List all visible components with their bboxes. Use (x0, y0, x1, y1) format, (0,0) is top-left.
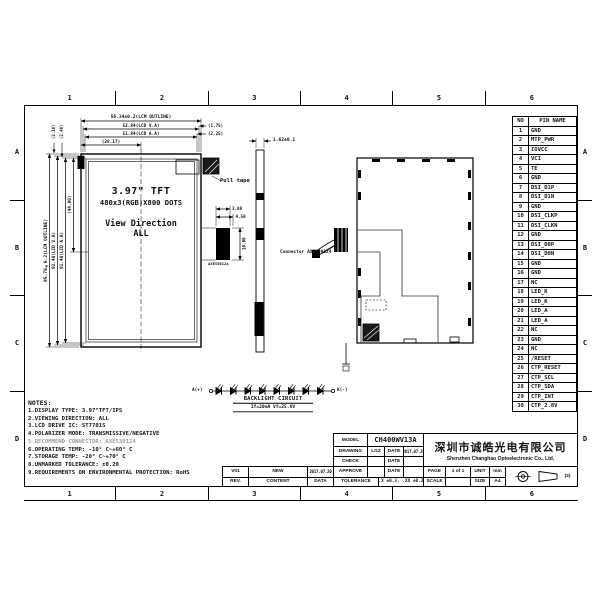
backlight-cathode-label: K(-) (337, 388, 348, 393)
approve-date-cell (403, 466, 423, 477)
content-label-cell: CONTENT (248, 477, 307, 488)
pin-row: 27 CTP_SCL (513, 373, 577, 383)
dim-lcm-outline-width: 56.34±0.2(LCM OUTLINE) (81, 115, 201, 120)
pin-row: 26 CTP_RESET (513, 364, 577, 374)
date-label-cell: DATE (384, 446, 403, 456)
note-item: 1.DISPLAY TYPE: 3.97"TFT/IPS (28, 408, 220, 416)
note-item: 8.UNMARKED TOLERANCE: ±0.20 (28, 462, 220, 470)
pin-number: 26 (513, 364, 529, 374)
pin-row: 25 /RESET (513, 354, 577, 364)
dim-right-margin-1: (1.75) (208, 123, 223, 128)
pin-name: GND (529, 126, 577, 136)
front-view (78, 149, 222, 352)
pin-name: GND (529, 202, 577, 212)
note-item: 3.LCD DRIVE IC: ST7701S (28, 423, 220, 431)
side-view (249, 138, 271, 352)
pin-row: 17 NC (513, 278, 577, 288)
check-by-cell (367, 456, 384, 466)
pin-name: LED_A (529, 307, 577, 317)
dim-vertical-center: (44.90) (67, 158, 74, 252)
note-item: 5.RECOMMEND CONNECTOR: AXE530124 (28, 439, 220, 447)
pin-row: 15 GND (513, 259, 577, 269)
title-block: V01 NEW 2017.07.20 REV. CONTENT DATA MOD… (222, 433, 578, 487)
pin-table-header: NO PIN NAME (513, 117, 577, 127)
tolerance-label-cell: TOLERANCE (333, 477, 378, 488)
pin-row: 2 MTP_PWR (513, 136, 577, 146)
pin-table: NO PIN NAME 1 GND 2 MTP_PWR 3 IOVCC 4 VC… (512, 116, 577, 412)
pin-name: CTP_INT (529, 392, 577, 402)
backlight-anode-label: A(+) (192, 388, 203, 393)
dim-lcd-va-width: 52.84(LCD V.A) (83, 124, 199, 129)
backlight-spec: If=20mA Vf=25.6V (233, 405, 313, 410)
pin-name: /RESET (529, 354, 577, 364)
dim-lcd-aa-width: 51.84(LCD A.A) (85, 132, 197, 137)
pin-number: 10 (513, 212, 529, 222)
rev-label-cell: REV. (222, 477, 248, 488)
connector-label: Connector AXE530124 (280, 250, 331, 255)
dim-lcd-va-height: 92.48(LCD V.A) (51, 156, 58, 345)
pin-number: 17 (513, 278, 529, 288)
pin-row: 24 NC (513, 345, 577, 355)
pin-number: 15 (513, 259, 529, 269)
pin-row: 14 DSI_D0N (513, 250, 577, 260)
note-item: 4.POLARIZER MODE: TRANSMISSIVE/NEGATIVE (28, 431, 220, 439)
panel-size-label: 3.97" TFT (84, 186, 198, 197)
pin-number: 18 (513, 288, 529, 298)
pin-number: 27 (513, 373, 529, 383)
pin-name: CTP_SDA (529, 383, 577, 393)
pin-row: 22 NC (513, 326, 577, 336)
notes-block: NOTES: 1.DISPLAY TYPE: 3.97"TFT/IPS 2.VI… (28, 399, 220, 477)
pin-name: CTP_2.8V (529, 402, 577, 412)
pin-number: 9 (513, 202, 529, 212)
lcd-datasheet-drawing: { "sheet": { "grid_cols": ["1","2","3","… (0, 0, 600, 600)
front-view-text: 3.97" TFT 480x3(RGB)X800 DOTS View Direc… (84, 186, 198, 239)
pin-number: 3 (513, 145, 529, 155)
drawing-by-cell: LGZ (367, 446, 384, 456)
dim-top-margin-2: (2.40) (58, 122, 65, 142)
connector-part-small-label: AXE530124 (208, 261, 229, 266)
pin-name: NC (529, 278, 577, 288)
pin-number: 1 (513, 126, 529, 136)
pin-number: 14 (513, 250, 529, 260)
model-label-cell: MODEL (333, 433, 367, 446)
pin-row: 18 LED_K (513, 288, 577, 298)
pin-number: 23 (513, 335, 529, 345)
note-item: 6.OPERATING TEMP: -10° C~+60° C (28, 447, 220, 455)
page-value-cell: 1 of 1 (445, 466, 470, 477)
dim-fpc-width2: 4.50 (236, 214, 246, 219)
dim-center-offset: (28.17) (81, 140, 141, 145)
pin-number: 22 (513, 326, 529, 336)
pin-name: DSI_CLKN (529, 221, 577, 231)
company-name-cn: 深圳市诚皓光电有限公司 (435, 439, 567, 455)
pin-number: 6 (513, 174, 529, 184)
check-date-cell (403, 456, 423, 466)
dim-lcm-outline-height: 95.78±0.2(LCM OUTLINE) (43, 154, 50, 347)
pin-name: CTP_RESET (529, 364, 577, 374)
rev-date-cell: 2017.07.20 (307, 466, 333, 477)
data-label-cell: DATA (307, 477, 333, 488)
pin-name: MTP_PWR (529, 136, 577, 146)
pin-name: NC (529, 345, 577, 355)
projection-symbol-cell: (3) (505, 466, 578, 487)
pin-number: 5 (513, 164, 529, 174)
pin-row: 1 GND (513, 126, 577, 136)
pin-name: LED_K (529, 297, 577, 307)
pin-name: GND (529, 335, 577, 345)
notes-title: NOTES: (28, 399, 220, 407)
dim-top-margin-1: (2.10) (50, 122, 57, 142)
dim-right-margin-2: (2.25) (208, 131, 223, 136)
pin-name: DSI_D1N (529, 193, 577, 203)
pin-name: DSI_D1P (529, 183, 577, 193)
check-label-cell: CHECK (333, 456, 367, 466)
unit-label-cell: UNIT (470, 466, 489, 477)
drawing-linework (0, 0, 600, 600)
drawing-label-cell: DRAWING (333, 446, 367, 456)
size-value-cell: A4 (489, 477, 505, 488)
pin-row: 28 CTP_SDA (513, 383, 577, 393)
scale-label-cell: SCALE (423, 477, 445, 488)
pin-number: 12 (513, 231, 529, 241)
third-angle-projection-icon (513, 466, 563, 487)
pin-row: 30 CTP_2.8V (513, 402, 577, 412)
rev-number-cell: V01 (222, 466, 248, 477)
size-label-cell: SIZE (470, 477, 489, 488)
pin-name: LED_A (529, 316, 577, 326)
panel-resolution-label: 480x3(RGB)X800 DOTS (84, 198, 198, 207)
pin-number: 4 (513, 155, 529, 165)
pin-number: 21 (513, 316, 529, 326)
pin-table-col-no: NO (513, 117, 529, 127)
unit-value-cell: mm (489, 466, 505, 477)
pin-row: 10 DSI_CLKP (513, 212, 577, 222)
pin-row: 7 DSI_D1P (513, 183, 577, 193)
pin-name: TE (529, 164, 577, 174)
pin-row: 8 DSI_D1N (513, 193, 577, 203)
pin-row: 13 DSI_D0P (513, 240, 577, 250)
approve-by-cell (367, 466, 384, 477)
pin-name: CTP_SCL (529, 373, 577, 383)
pin-row: 3 IOVCC (513, 145, 577, 155)
dim-fpc-height: 10.00 (241, 229, 247, 259)
pin-name: IOVCC (529, 145, 577, 155)
dim-lcd-aa-height: 91.48(LCD A.A) (59, 158, 66, 343)
pin-row: 16 GND (513, 269, 577, 279)
pin-row: 4 VCI (513, 155, 577, 165)
pin-name: GND (529, 269, 577, 279)
approve-label-cell: APPROVE (333, 466, 367, 477)
pin-row: 21 LED_A (513, 316, 577, 326)
view-direction-all: ALL (84, 229, 198, 239)
pin-row: 19 LED_K (513, 297, 577, 307)
projection-note: (3) (565, 474, 571, 479)
note-item: 9.REQUIREMENTS ON ENVIRONMENTAL PROTECTI… (28, 470, 220, 478)
view-direction-label: View Direction (84, 219, 198, 229)
date-label-cell: DATE (384, 466, 403, 477)
pull-tape-label: Pull tape (220, 178, 250, 184)
pin-row: 6 GND (513, 174, 577, 184)
pin-name: LED_K (529, 288, 577, 298)
note-item: 2.VIEWING DIRECTION: ALL (28, 416, 220, 424)
pin-number: 30 (513, 402, 529, 412)
pin-row: 23 GND (513, 335, 577, 345)
pin-name: GND (529, 174, 577, 184)
pin-name: DSI_D0P (529, 240, 577, 250)
date-label-cell: DATE (384, 456, 403, 466)
pin-name: DSI_D0N (529, 250, 577, 260)
pin-number: 29 (513, 392, 529, 402)
note-item: 7.STORAGE TEMP: -20° C~+70° C (28, 454, 220, 462)
pin-number: 2 (513, 136, 529, 146)
back-view (312, 158, 473, 371)
pin-name: GND (529, 231, 577, 241)
company-cell: 深圳市诚皓光电有限公司 Shenzhen Changhao Optoelectr… (423, 433, 578, 466)
pin-row: 11 DSI_CLKN (513, 221, 577, 231)
pin-number: 13 (513, 240, 529, 250)
pin-number: 19 (513, 297, 529, 307)
pin-row: 9 GND (513, 202, 577, 212)
pin-number: 11 (513, 221, 529, 231)
dim-thickness: 1.62±0.1 (273, 138, 295, 143)
pin-number: 25 (513, 354, 529, 364)
pin-row: 20 LED_A (513, 307, 577, 317)
pin-row: 5 TE (513, 164, 577, 174)
pin-row: 29 CTP_INT (513, 392, 577, 402)
pin-name: NC (529, 326, 577, 336)
page-label-cell: PAGE (423, 466, 445, 477)
company-name-en: Shenzhen Changhao Optoelectronic Co., Lt… (447, 456, 555, 462)
pin-row: 12 GND (513, 231, 577, 241)
drawing-date-cell: 2017.07.20 (403, 446, 423, 456)
model-value-cell: CH400WV13A (367, 433, 423, 446)
rev-content-cell: NEW (248, 466, 307, 477)
pin-table-col-name: PIN NAME (529, 117, 577, 127)
pin-name: GND (529, 259, 577, 269)
pin-number: 20 (513, 307, 529, 317)
pin-name: DSI_CLKP (529, 212, 577, 222)
dim-fpc-width: 3.88 (232, 206, 242, 211)
backlight-circuit-title: BACKLIGHT CIRCUIT (233, 396, 313, 402)
tolerance-value-cell: .X ±0.3, .XX ±0.2 (378, 477, 423, 488)
pin-number: 28 (513, 383, 529, 393)
pin-number: 16 (513, 269, 529, 279)
pin-number: 24 (513, 345, 529, 355)
pin-number: 7 (513, 183, 529, 193)
pin-number: 8 (513, 193, 529, 203)
scale-value-cell (445, 477, 470, 488)
pin-name: VCI (529, 155, 577, 165)
